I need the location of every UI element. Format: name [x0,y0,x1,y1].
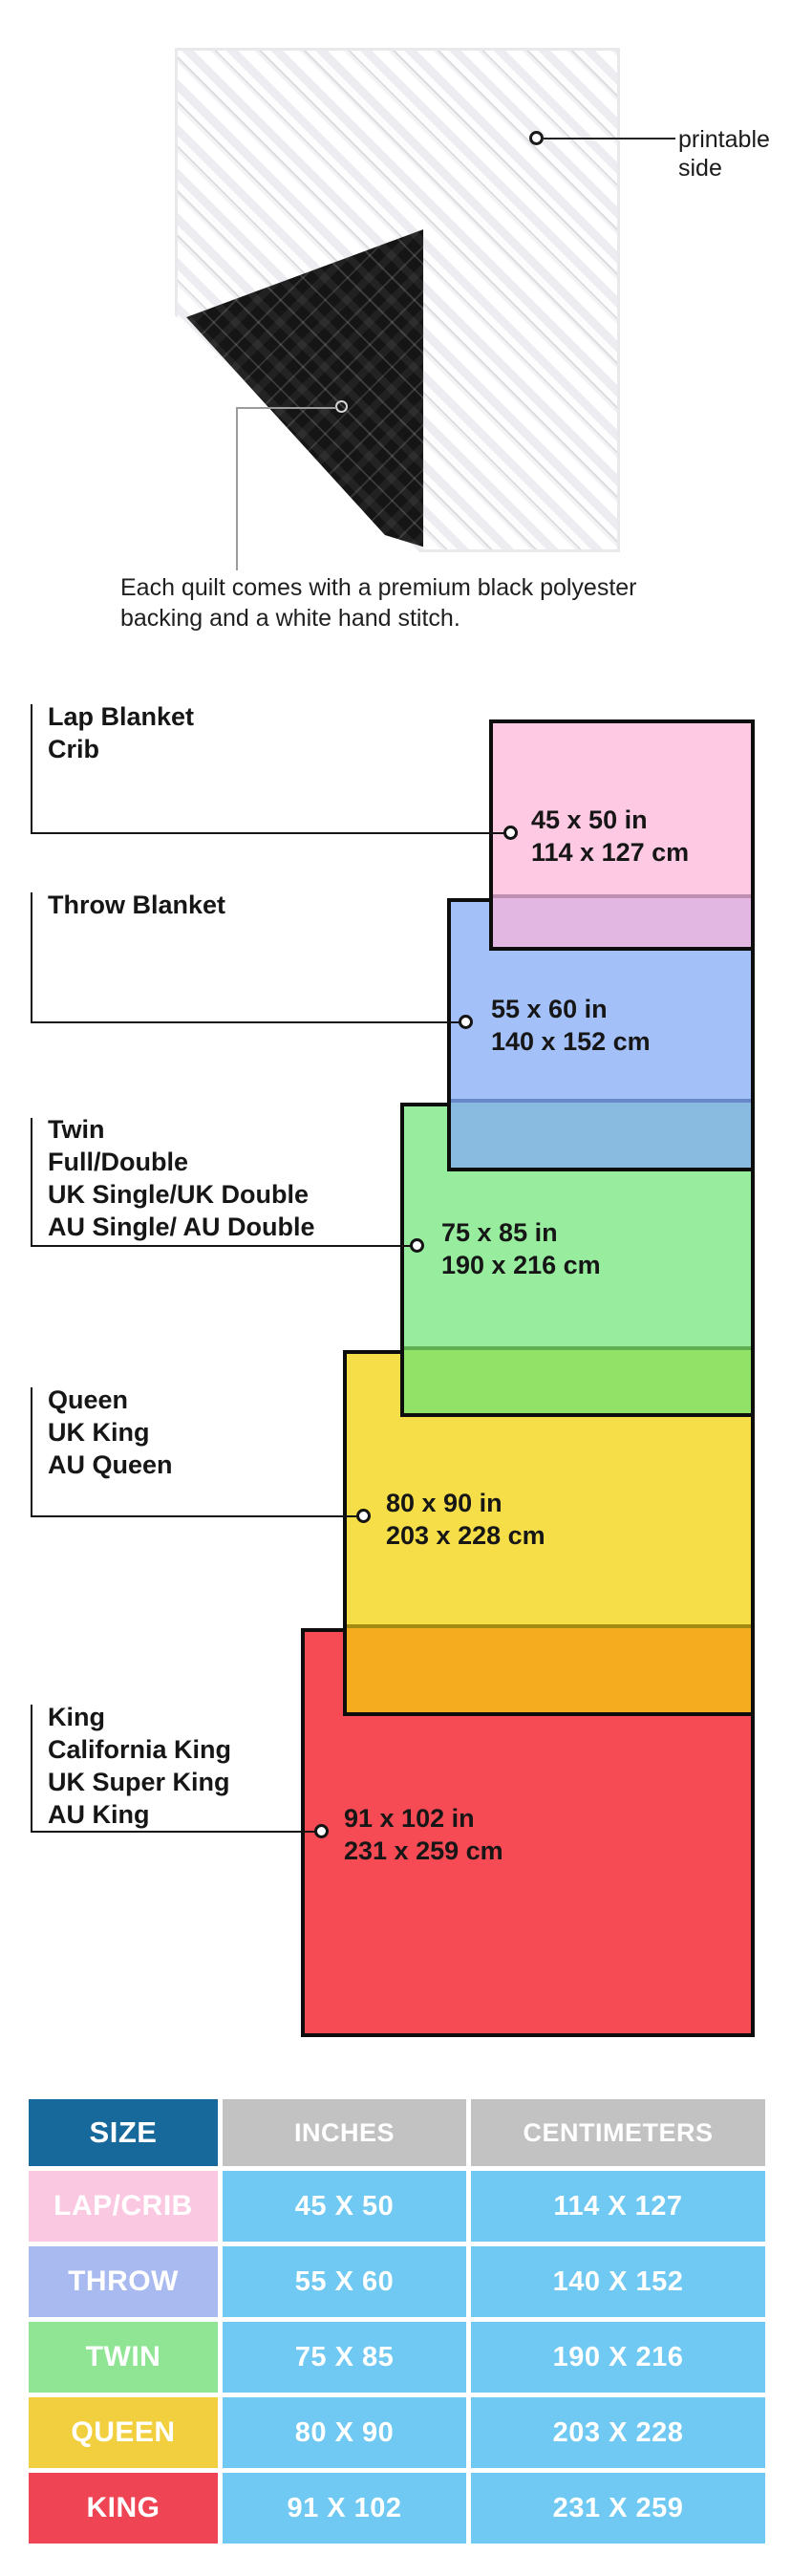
size-centimeters: 114 x 127 cm [531,836,689,869]
label-line-vertical-twin [31,1118,32,1246]
leader-ring-throw [459,1015,473,1029]
leader-ring-queen [356,1509,371,1523]
quilt-caption-line-1: Each quilt comes with a premium black po… [120,572,703,603]
diagram-size-twin: 75 x 85 in 190 x 216 cm [441,1216,601,1281]
overlap-band-throw-over-twin [451,1099,751,1168]
size-inches: 55 x 60 in [491,993,651,1025]
table-cell-inches: 91 X 102 [223,2473,466,2544]
table-header-size: SIZE [29,2099,218,2166]
table-row-label-queen: QUEEN [29,2397,218,2468]
label-line-vertical-lap [31,704,32,833]
printable-side-label: printable side [678,125,791,182]
diagram-label-king: King California King UK Super King AU Ki… [48,1701,231,1831]
leader-line-twin [31,1245,411,1247]
overlap-band-queen-over-king [347,1624,751,1712]
diagram-size-lap-crib: 45 x 50 in 114 x 127 cm [531,804,689,869]
quilt-caption-line-2: backing and a white hand stitch. [120,603,703,633]
printable-side-leader-line [544,138,675,140]
quilt-figure [175,48,620,552]
quilt-caption: Each quilt comes with a premium black po… [120,572,703,633]
table-header-inches: INCHES [223,2099,466,2166]
label-line: AU King [48,1798,231,1831]
table-cell-inches: 80 X 90 [223,2397,466,2468]
leader-line-queen [31,1515,357,1517]
size-centimeters: 190 x 216 cm [441,1249,601,1281]
leader-ring-king [314,1824,329,1838]
size-table: SIZE INCHES CENTIMETERS LAP/CRIB 45 X 50… [29,2099,770,2544]
table-cell-centimeters: 203 X 228 [471,2397,765,2468]
printable-side-marker-icon [529,131,544,145]
label-line-vertical-queen [31,1387,32,1517]
label-line-vertical-king [31,1705,32,1833]
table-cell-inches: 45 X 50 [223,2171,466,2242]
diagram-size-throw: 55 x 60 in 140 x 152 cm [491,993,651,1058]
label-line: UK King [48,1416,173,1449]
leader-ring-lap [503,826,518,840]
label-line: Full/Double [48,1146,315,1178]
label-line-vertical-throw [31,892,32,1022]
table-cell-centimeters: 190 X 216 [471,2322,765,2393]
label-line: Queen [48,1384,173,1416]
table-cell-inches: 55 X 60 [223,2246,466,2317]
table-row-label-king: KING [29,2473,218,2544]
backing-leader-line-vertical [236,407,238,570]
leader-ring-twin [410,1238,424,1253]
label-line: Twin [48,1113,315,1146]
table-header-centimeters: CENTIMETERS [471,2099,765,2166]
diagram-size-king: 91 x 102 in 231 x 259 cm [344,1802,503,1867]
label-line: Throw Blanket [48,889,225,921]
leader-line-throw [31,1021,460,1023]
diagram-label-queen: Queen UK King AU Queen [48,1384,173,1481]
table-row-label-twin: TWIN [29,2322,218,2393]
label-line: UK Super King [48,1766,231,1798]
overlap-band-lap-over-throw [493,894,751,947]
leader-line-king [31,1831,315,1833]
size-inches: 75 x 85 in [441,1216,601,1249]
size-centimeters: 203 x 228 cm [386,1519,545,1552]
table-cell-centimeters: 114 X 127 [471,2171,765,2242]
diagram-size-queen: 80 x 90 in 203 x 228 cm [386,1487,545,1552]
label-line: King [48,1701,231,1733]
size-inches: 91 x 102 in [344,1802,503,1835]
label-line: AU Single/ AU Double [48,1211,315,1243]
table-cell-centimeters: 231 X 259 [471,2473,765,2544]
size-centimeters: 231 x 259 cm [344,1835,503,1867]
backing-leader-line-horizontal [237,407,336,409]
table-row-label-lap-crib: LAP/CRIB [29,2171,218,2242]
size-inches: 45 x 50 in [531,804,689,836]
leader-line-lap [31,832,504,834]
label-line: UK Single/UK Double [48,1178,315,1211]
diagram-label-twin: Twin Full/Double UK Single/UK Double AU … [48,1113,315,1243]
size-centimeters: 140 x 152 cm [491,1025,651,1058]
overlap-band-twin-over-queen [404,1346,751,1413]
backing-marker-icon [335,400,348,413]
label-line: Lap Blanket [48,700,194,733]
table-cell-centimeters: 140 X 152 [471,2246,765,2317]
size-inches: 80 x 90 in [386,1487,545,1519]
label-line: California King [48,1733,231,1766]
diagram-label-lap-crib: Lap Blanket Crib [48,700,194,765]
table-cell-inches: 75 X 85 [223,2322,466,2393]
table-row-label-throw: THROW [29,2246,218,2317]
diagram-label-throw: Throw Blanket [48,889,225,921]
label-line: Crib [48,733,194,765]
label-line: AU Queen [48,1449,173,1481]
